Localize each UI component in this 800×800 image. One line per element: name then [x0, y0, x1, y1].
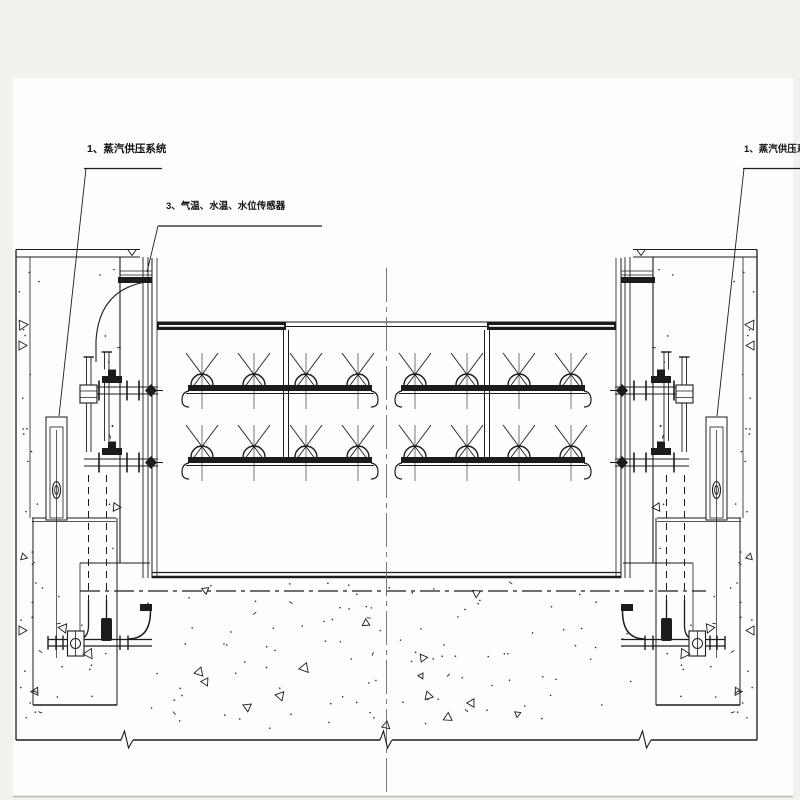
- stipple-mark: [461, 677, 463, 679]
- stipple-mark: [330, 703, 332, 705]
- stipple-mark: [255, 601, 257, 603]
- stipple-mark: [542, 676, 544, 678]
- stipple-mark: [179, 687, 181, 689]
- stipple-mark: [595, 647, 597, 649]
- stipple-mark: [301, 625, 303, 627]
- stipple-mark: [323, 621, 325, 623]
- stipple-mark: [274, 650, 276, 652]
- stipple-mark: [541, 718, 543, 720]
- stipple-mark: [479, 600, 481, 602]
- stipple-mark: [622, 638, 624, 640]
- stipple-mark: [348, 584, 350, 586]
- stipple-mark: [356, 593, 358, 595]
- stipple-mark: [601, 704, 603, 706]
- stipple-mark: [507, 653, 509, 655]
- stipple-mark: [328, 722, 330, 724]
- stipple-mark: [504, 653, 506, 655]
- stipple-mark: [239, 718, 241, 720]
- stipple-mark: [327, 582, 329, 584]
- stipple-mark: [412, 592, 414, 594]
- stipple-mark: [188, 597, 190, 599]
- stipple-mark: [342, 696, 344, 698]
- stipple-mark: [388, 587, 390, 589]
- stipple-mark: [156, 673, 158, 675]
- stipple-mark: [375, 680, 377, 682]
- drawing-canvas: 1、蒸汽供压系统 3、气温、水温、水位传感器 1、蒸汽供压系统: [0, 0, 800, 800]
- stipple-mark: [369, 712, 371, 714]
- stipple-mark: [455, 655, 457, 657]
- stipple-mark: [630, 681, 632, 683]
- stipple-mark: [595, 601, 597, 603]
- stipple-mark: [184, 643, 186, 645]
- stipple-mark: [191, 627, 193, 629]
- stipple-mark: [151, 707, 153, 709]
- stipple-mark: [356, 702, 358, 704]
- stipple-mark: [371, 607, 373, 609]
- stipple-mark: [230, 631, 232, 633]
- stipple-mark: [437, 698, 439, 700]
- label-sensors: 3、气温、水温、水位传感器: [166, 200, 286, 212]
- stipple-mark: [626, 633, 628, 635]
- stipple-mark: [433, 588, 435, 590]
- stipple-mark: [555, 679, 557, 681]
- label-steam-supply-right: 1、蒸汽供压系统: [744, 143, 800, 155]
- stipple-mark: [368, 682, 370, 684]
- stipple-mark: [464, 609, 466, 611]
- stipple-mark: [563, 629, 565, 631]
- stipple-mark: [223, 643, 225, 645]
- stipple-mark: [441, 655, 443, 657]
- stipple-mark: [411, 661, 413, 663]
- stipple-mark: [235, 672, 237, 674]
- stipple-mark: [550, 694, 552, 696]
- stipple-mark: [524, 705, 526, 707]
- stipple-mark: [339, 607, 341, 609]
- stipple-mark: [486, 709, 488, 711]
- stipple-mark: [400, 639, 402, 641]
- stipple-mark: [366, 606, 368, 608]
- stipple-mark: [269, 727, 271, 729]
- stipple-mark: [581, 628, 583, 630]
- stipple-mark: [266, 646, 268, 648]
- stipple-mark: [224, 714, 226, 716]
- stipple-mark: [457, 616, 459, 618]
- stipple-mark: [147, 602, 149, 604]
- stipple-mark: [289, 583, 291, 585]
- stipple-mark: [272, 628, 274, 630]
- stipple-mark: [244, 661, 246, 663]
- stipple-mark: [532, 632, 534, 634]
- stipple-mark: [432, 658, 434, 660]
- stipple-mark: [279, 687, 281, 689]
- stipple-mark: [477, 603, 479, 605]
- stipple-mark: [551, 606, 553, 608]
- stipple-mark: [420, 628, 422, 630]
- stipple-mark: [181, 695, 183, 697]
- stipple-mark: [266, 667, 268, 669]
- paper-sheet: [13, 78, 793, 796]
- stipple-mark: [351, 658, 353, 660]
- stipple-mark: [590, 658, 592, 660]
- stipple-mark: [373, 717, 375, 719]
- stipple-mark: [443, 644, 445, 646]
- stipple-mark: [379, 630, 381, 632]
- label-steam-supply-left: 1、蒸汽供压系统: [87, 142, 167, 155]
- stipple-mark: [402, 701, 404, 703]
- stipple-mark: [467, 710, 469, 712]
- stipple-mark: [415, 652, 417, 654]
- stipple-mark: [290, 713, 292, 715]
- stipple-mark: [348, 608, 350, 610]
- stipple-mark: [425, 723, 427, 725]
- stipple-mark: [575, 645, 577, 647]
- stipple-mark: [465, 709, 467, 711]
- stipple-mark: [332, 619, 334, 621]
- stipple-mark: [210, 585, 212, 587]
- stipple-mark: [340, 641, 342, 643]
- stipple-mark: [487, 656, 489, 658]
- stipple-mark: [325, 640, 327, 642]
- stipple-mark: [226, 644, 228, 646]
- stipple-mark: [179, 720, 181, 722]
- stipple-mark: [491, 685, 493, 687]
- stipple-mark: [509, 679, 511, 681]
- stipple-mark: [579, 594, 581, 596]
- stipple-mark: [173, 699, 175, 701]
